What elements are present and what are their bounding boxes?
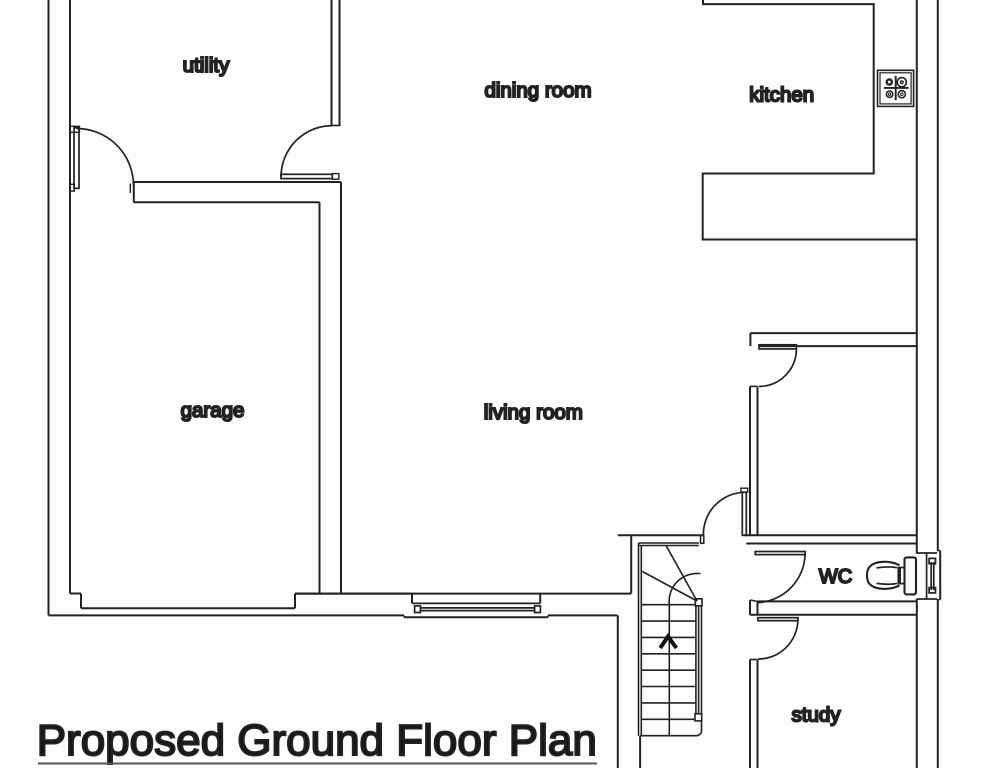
svg-text:dining room: dining room [484,79,591,102]
svg-text:study: study [792,704,842,727]
svg-text:Proposed Ground Floor Plan: Proposed Ground Floor Plan [37,716,597,765]
svg-text:utility: utility [183,54,230,77]
svg-text:WC: WC [819,566,852,588]
svg-text:living room: living room [484,401,583,424]
svg-text:kitchen: kitchen [749,84,814,107]
svg-text:garage: garage [181,399,245,422]
